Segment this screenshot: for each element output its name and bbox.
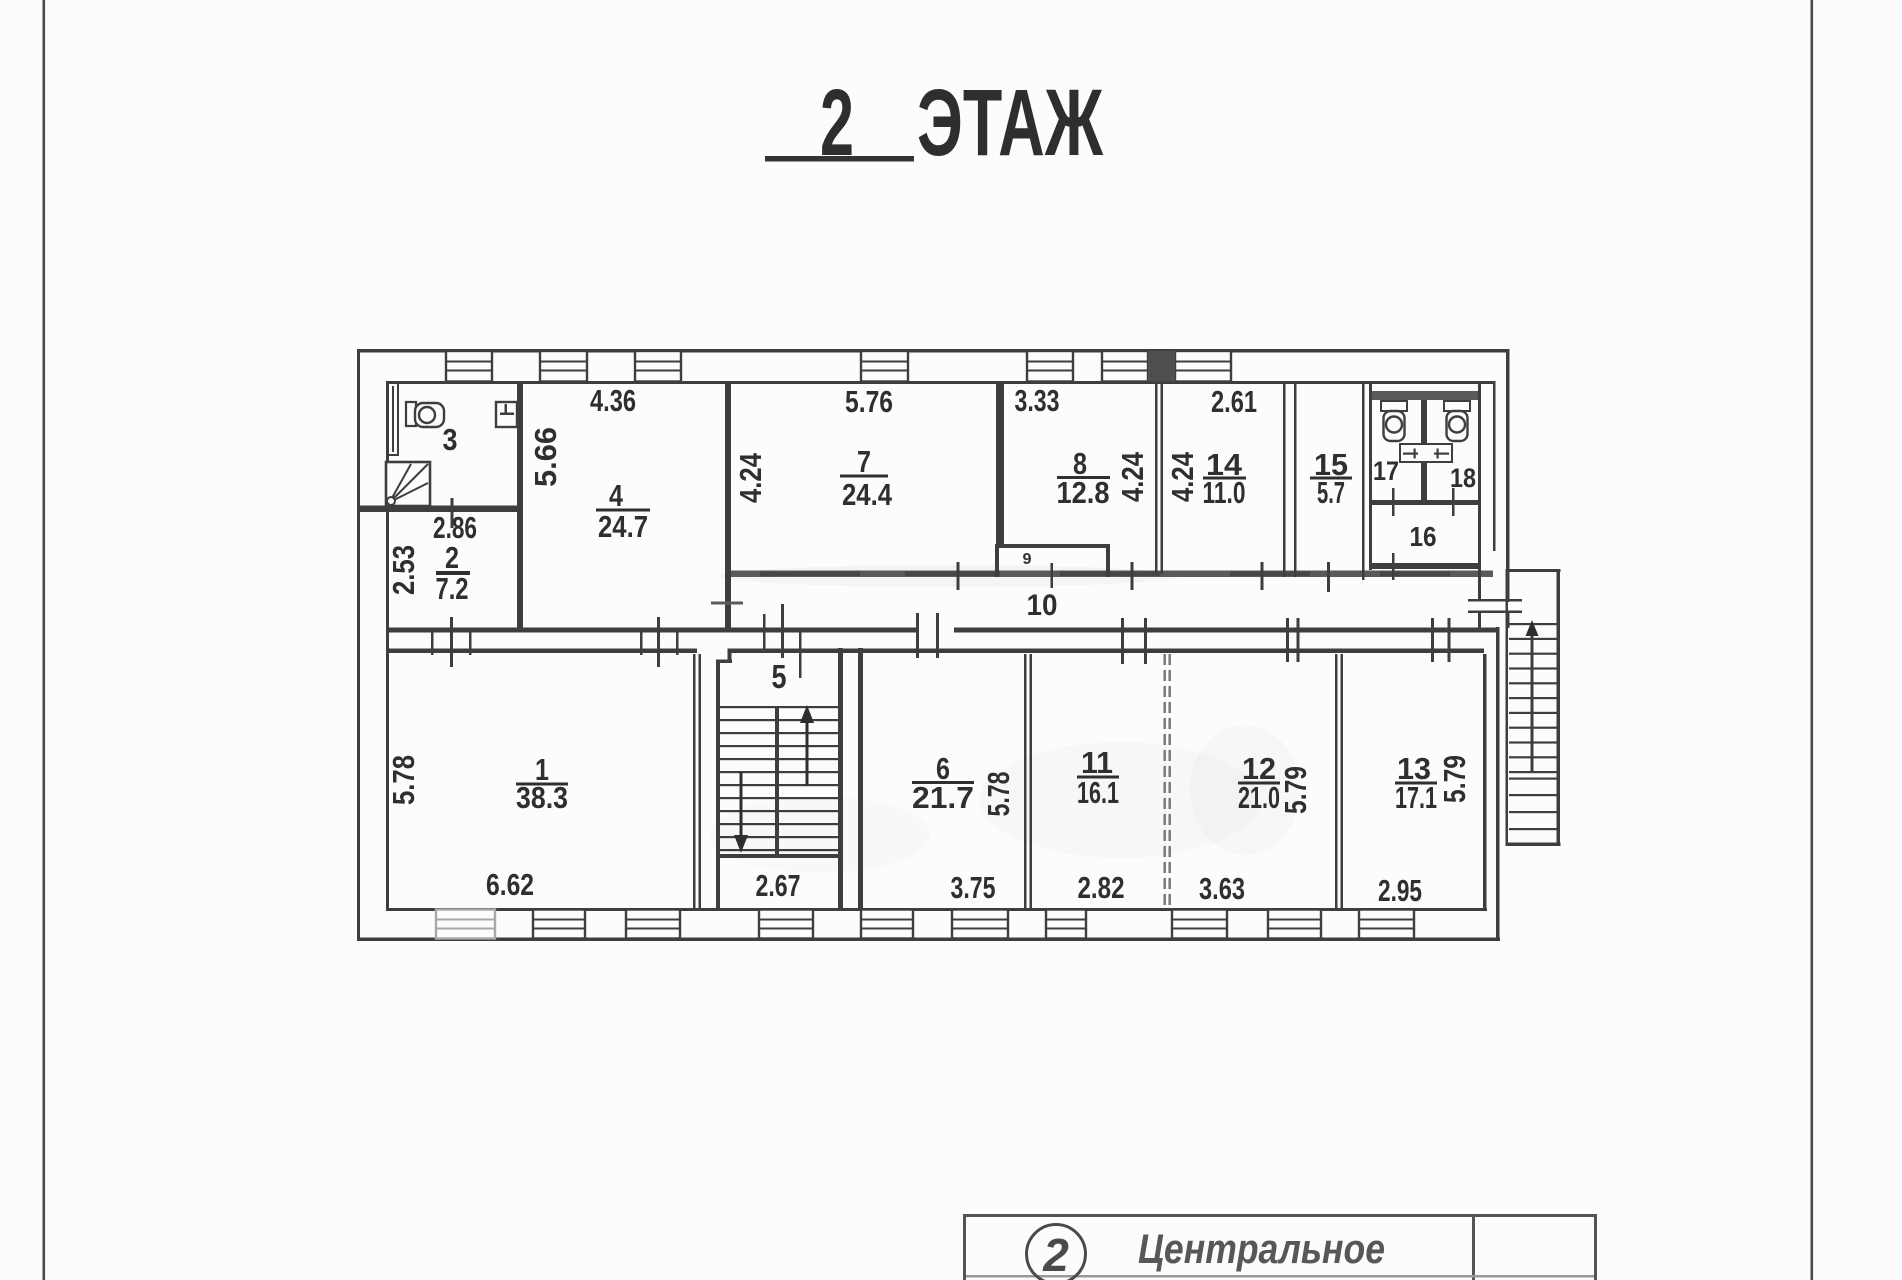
svg-text:21.7: 21.7 (912, 780, 974, 815)
svg-text:4.36: 4.36 (590, 383, 636, 418)
svg-text:5: 5 (772, 658, 787, 695)
svg-text:5.78: 5.78 (386, 755, 421, 805)
svg-text:24.7: 24.7 (598, 509, 648, 544)
svg-text:4: 4 (609, 478, 624, 513)
svg-text:6.62: 6.62 (486, 867, 534, 902)
svg-text:2.95: 2.95 (1378, 873, 1422, 908)
svg-text:4.24: 4.24 (1115, 451, 1150, 502)
svg-text:12.8: 12.8 (1057, 475, 1110, 510)
svg-text:11.0: 11.0 (1203, 475, 1246, 510)
svg-text:2.86: 2.86 (433, 510, 477, 545)
svg-text:17: 17 (1373, 456, 1399, 486)
svg-text:2: 2 (1042, 1229, 1069, 1280)
svg-text:4.24: 4.24 (1165, 451, 1200, 502)
svg-text:2.61: 2.61 (1211, 384, 1257, 419)
svg-text:7.2: 7.2 (436, 571, 469, 606)
svg-text:16: 16 (1410, 521, 1437, 552)
svg-text:3: 3 (443, 422, 458, 457)
svg-text:2.67: 2.67 (756, 868, 801, 903)
svg-text:5.79: 5.79 (1437, 755, 1472, 803)
svg-text:2: 2 (445, 540, 459, 575)
svg-text:5.79: 5.79 (1278, 766, 1313, 814)
svg-text:3.63: 3.63 (1199, 871, 1245, 906)
svg-text:17.1: 17.1 (1395, 780, 1437, 815)
svg-text:3.33: 3.33 (1015, 383, 1060, 418)
svg-text:10: 10 (1027, 589, 1058, 622)
svg-text:2.53: 2.53 (386, 545, 421, 595)
svg-text:5.7: 5.7 (1317, 475, 1345, 510)
svg-text:5.76: 5.76 (845, 384, 893, 419)
svg-text:21.0: 21.0 (1238, 780, 1280, 815)
svg-text:5.78: 5.78 (981, 772, 1016, 817)
svg-text:7: 7 (857, 444, 871, 479)
svg-text:ЭТАЖ: ЭТАЖ (917, 70, 1104, 176)
svg-text:3.75: 3.75 (951, 870, 996, 905)
svg-text:2.82: 2.82 (1078, 870, 1125, 905)
svg-text:5.66: 5.66 (528, 427, 563, 487)
svg-text:16.1: 16.1 (1077, 775, 1119, 810)
svg-text:4.24: 4.24 (733, 452, 768, 503)
svg-text:38.3: 38.3 (516, 780, 568, 815)
svg-text:9: 9 (1023, 551, 1032, 568)
svg-text:18: 18 (1450, 463, 1476, 493)
svg-text:24.4: 24.4 (842, 477, 893, 512)
svg-text:Центральное: Центральное (1138, 1225, 1385, 1272)
